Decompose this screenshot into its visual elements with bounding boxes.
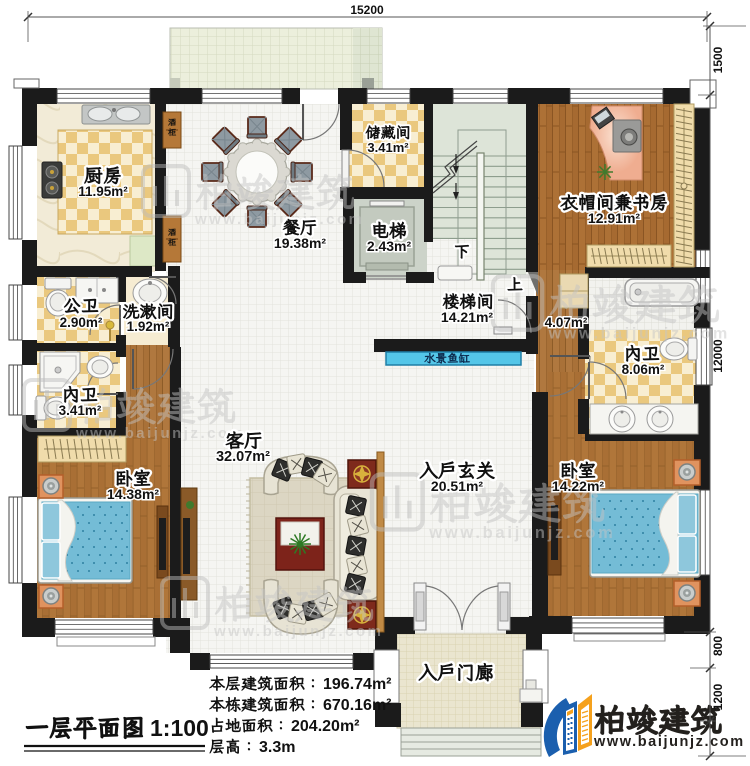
svg-text:20.51m²: 20.51m² [431,478,483,494]
svg-text:3.41m²: 3.41m² [367,140,409,155]
svg-text:www.baijunjz.com: www.baijunjz.com [593,734,745,750]
svg-text:14.38m²: 14.38m² [107,486,159,502]
svg-text:15200: 15200 [350,3,384,17]
svg-text:14.21m²: 14.21m² [441,309,493,325]
svg-text:www.baijunjz.com: www.baijunjz.com [75,425,245,442]
svg-text:19.38m²: 19.38m² [274,235,326,251]
svg-text:2.90m²: 2.90m² [60,315,103,330]
svg-text:1.92m²: 1.92m² [127,319,170,334]
svg-text:8.06m²: 8.06m² [622,362,665,377]
svg-text:14.22m²: 14.22m² [552,478,604,494]
svg-text:204.20m²: 204.20m² [291,718,360,735]
svg-text:1200: 1200 [711,683,725,710]
svg-text:196.74m²: 196.74m² [323,676,392,693]
svg-text:32.07m²: 32.07m² [216,449,270,465]
svg-text:www.baijunjz.com: www.baijunjz.com [428,524,615,542]
svg-text:12000: 12000 [711,339,725,373]
svg-text:800: 800 [711,636,725,656]
svg-text:www.baijunjz.com: www.baijunjz.com [213,623,383,640]
svg-text:3.41m²: 3.41m² [59,403,102,418]
svg-text:1500: 1500 [711,46,725,73]
svg-text:11.95m²: 11.95m² [78,184,128,199]
svg-text:12.91m²: 12.91m² [588,210,640,226]
svg-text:3.3m: 3.3m [259,739,295,756]
svg-text:1:100: 1:100 [150,715,209,741]
svg-text:670.16m²: 670.16m² [323,697,392,714]
svg-text:4.07m²: 4.07m² [545,315,588,330]
svg-text:2.43m²: 2.43m² [367,238,412,254]
svg-text:www.baijunjz.com: www.baijunjz.com [194,211,364,228]
